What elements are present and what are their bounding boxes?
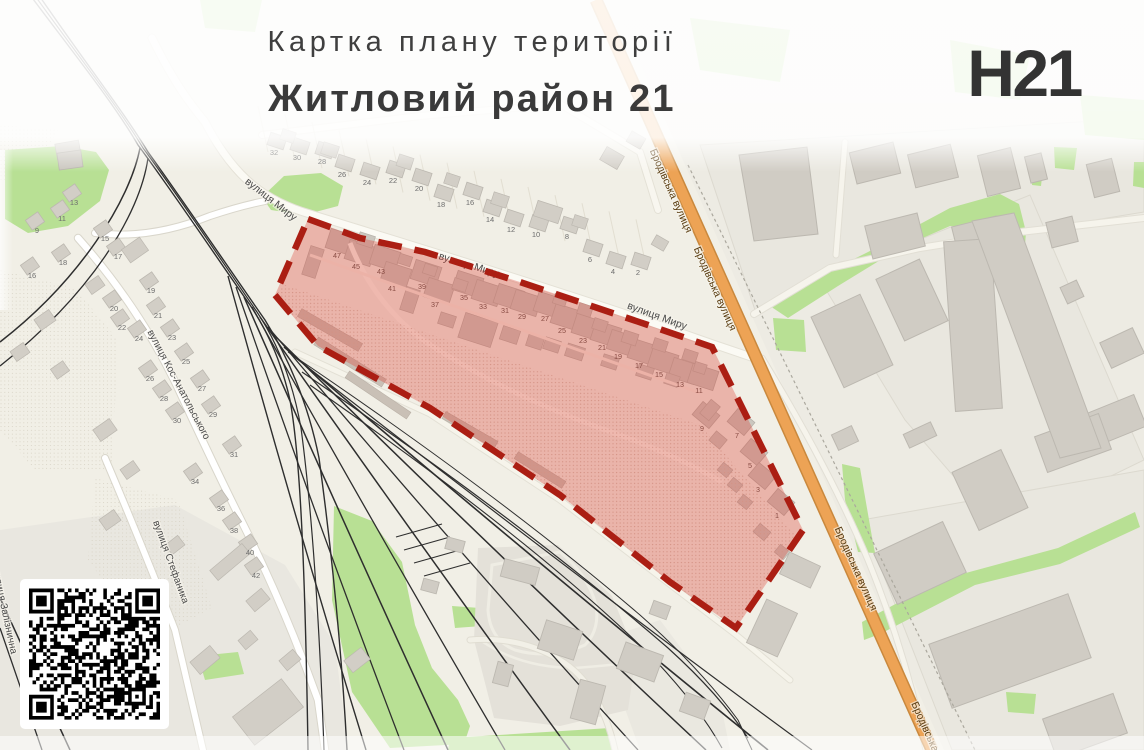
svg-text:Картка плану території: Картка плану території [268, 26, 677, 58]
svg-text:23: 23 [168, 333, 176, 342]
svg-text:24: 24 [363, 178, 371, 187]
svg-text:19: 19 [147, 286, 155, 295]
svg-text:11: 11 [58, 214, 66, 223]
svg-text:16: 16 [466, 198, 474, 207]
svg-text:29: 29 [209, 410, 217, 419]
svg-text:21: 21 [154, 311, 162, 320]
svg-text:36: 36 [217, 504, 225, 513]
svg-text:25: 25 [182, 357, 190, 366]
svg-text:34: 34 [191, 477, 199, 486]
svg-text:12: 12 [507, 225, 515, 234]
svg-text:Житловий район 21: Житловий район 21 [267, 78, 675, 120]
svg-text:38: 38 [230, 526, 238, 535]
svg-text:9: 9 [35, 226, 39, 235]
svg-text:28: 28 [160, 394, 168, 403]
svg-text:18: 18 [437, 200, 445, 209]
svg-text:24: 24 [135, 334, 143, 343]
svg-text:17: 17 [114, 252, 122, 261]
svg-text:20: 20 [415, 184, 423, 193]
svg-text:15: 15 [101, 234, 109, 243]
svg-text:14: 14 [486, 215, 494, 224]
svg-text:8: 8 [565, 232, 569, 241]
svg-text:40: 40 [246, 548, 254, 557]
svg-text:31: 31 [230, 450, 238, 459]
svg-text:16: 16 [28, 271, 36, 280]
svg-text:6: 6 [588, 255, 592, 264]
svg-text:18: 18 [59, 258, 67, 267]
svg-text:20: 20 [110, 304, 118, 313]
svg-text:10: 10 [532, 230, 540, 239]
svg-text:22: 22 [389, 176, 397, 185]
svg-text:22: 22 [118, 323, 126, 332]
svg-text:26: 26 [146, 374, 154, 383]
svg-text:4: 4 [611, 267, 615, 276]
svg-text:30: 30 [173, 416, 181, 425]
svg-text:2: 2 [636, 268, 640, 277]
svg-text:27: 27 [198, 384, 206, 393]
svg-text:Н21: Н21 [967, 36, 1081, 110]
svg-text:42: 42 [252, 571, 260, 580]
svg-text:13: 13 [70, 198, 78, 207]
